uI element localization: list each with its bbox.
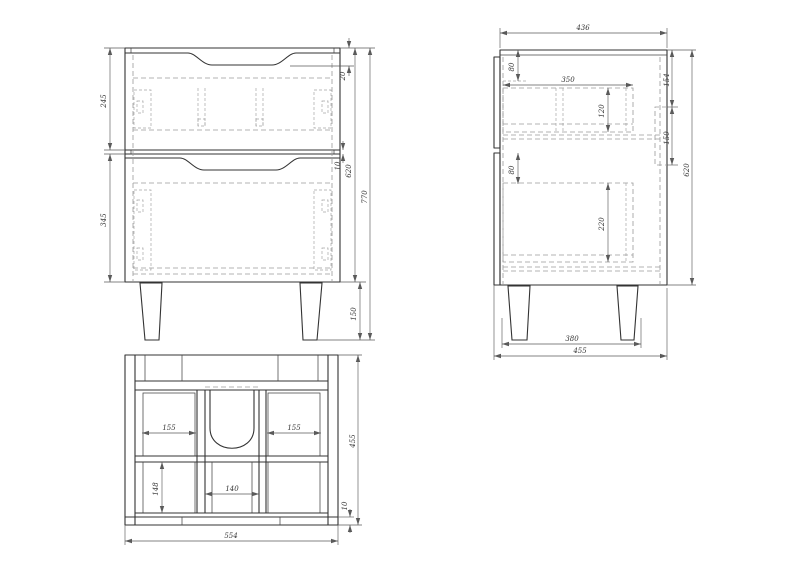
side-view: 436 80 350 120 154 150 620 80 — [494, 24, 696, 360]
dim-front-overall-height: 770 — [361, 190, 369, 204]
drawer2-front-recess — [125, 158, 340, 170]
drawer1-front-edge — [494, 57, 500, 148]
dim-side-leg-span: 380 — [565, 335, 579, 343]
dim-bottom-overall-depth: 455 — [349, 434, 357, 449]
side-front-leg — [508, 286, 530, 340]
drawing-sheet: 245 345 20 10 620 150 770 — [0, 0, 800, 566]
dim-side-back-cutout-offset: 154 — [663, 73, 671, 86]
dim-side-body-height: 620 — [683, 163, 691, 177]
dim-side-hole-offset-top: 80 — [508, 62, 516, 71]
dim-side-hole-offset-bottom: 80 — [508, 165, 516, 174]
dim-front-drawer1-height: 245 — [100, 94, 108, 109]
dim-bottom-overall-width: 554 — [224, 532, 237, 540]
drawer2-slide-left — [134, 190, 151, 270]
cabinet-body-front — [125, 48, 340, 282]
front-legs — [140, 283, 322, 340]
cabinet-body-bottom — [125, 355, 338, 525]
dim-bottom-rail-thickness: 10 — [341, 501, 349, 510]
side-back-leg — [617, 286, 638, 340]
drawer1-hidden-box — [503, 88, 633, 132]
dim-bottom-right-section: 155 — [287, 424, 301, 432]
bottom-view: 155 155 140 148 455 10 554 — [125, 355, 362, 545]
drawer2-front-edge — [494, 153, 500, 285]
technical-drawing: 245 345 20 10 620 150 770 — [0, 0, 800, 566]
dim-side-overall-depth: 455 — [572, 347, 587, 355]
front-view: 245 345 20 10 620 150 770 — [100, 38, 375, 340]
sink-trap-cutout — [210, 390, 254, 448]
drawer1-slide-left — [134, 90, 151, 128]
front-hidden-lines — [133, 55, 332, 282]
drawer1-slide-right — [314, 90, 331, 128]
dim-bottom-left-depth: 148 — [152, 482, 160, 496]
dim-front-body-height: 620 — [345, 164, 353, 178]
drawer2-hidden-box — [503, 183, 633, 262]
drawer2-slide-right — [314, 190, 331, 270]
dim-side-drawer1-inner-height: 120 — [598, 104, 606, 118]
dim-front-drawer-gap: 10 — [334, 161, 342, 170]
side-hidden-lines — [503, 57, 667, 285]
dim-front-top-inset: 20 — [339, 71, 347, 81]
side-legs — [508, 286, 638, 340]
dim-front-leg-height: 150 — [350, 307, 358, 321]
dim-front-drawer2-height: 345 — [100, 213, 108, 227]
dim-bottom-center-section: 140 — [225, 485, 239, 493]
front-right-leg — [300, 283, 322, 340]
front-left-leg — [140, 283, 162, 340]
drawer1-front-recess — [125, 53, 340, 65]
dim-side-drawer2-inner-height: 220 — [598, 217, 606, 232]
dim-side-top-depth: 436 — [575, 24, 590, 32]
dim-bottom-left-section: 155 — [162, 424, 176, 432]
dim-side-drawer-depth: 350 — [561, 76, 575, 84]
dim-side-back-cutout-height: 150 — [663, 131, 671, 145]
